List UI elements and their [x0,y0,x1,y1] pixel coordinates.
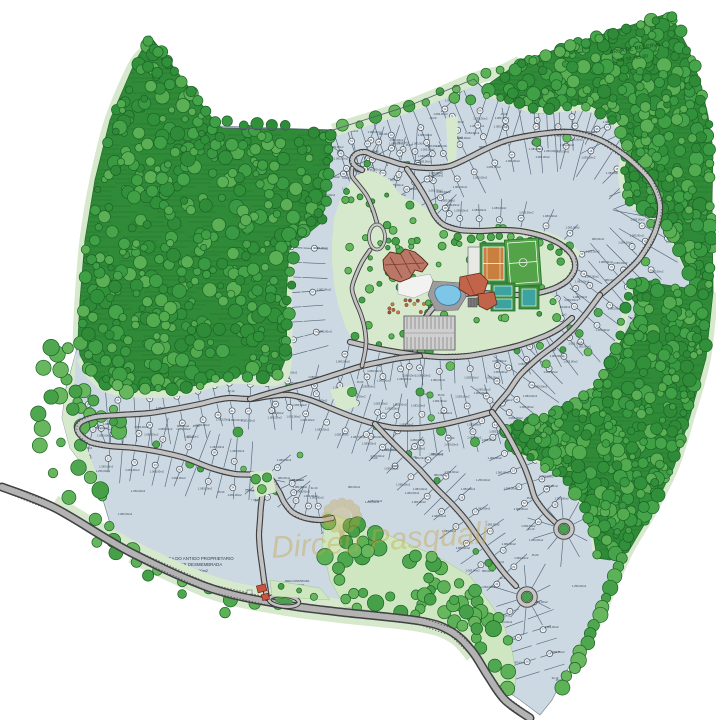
svg-text:1.083,00m2: 1.083,00m2 [293,485,308,489]
svg-text:1.083,00m2: 1.083,00m2 [300,418,315,422]
svg-text:1.083,00m2: 1.083,00m2 [568,342,583,346]
svg-text:1.083,00m2: 1.083,00m2 [563,360,578,364]
svg-text:1.083,00m2: 1.083,00m2 [519,405,534,409]
svg-text:1.083,00m2: 1.083,00m2 [441,199,456,203]
svg-text:1.083,00m2: 1.083,00m2 [99,465,114,469]
svg-text:1.083,00m2: 1.083,00m2 [230,449,245,453]
svg-text:1.083,00m2: 1.083,00m2 [438,411,453,415]
svg-text:1.083,00m2: 1.083,00m2 [550,354,565,358]
svg-text:1.083,00m2: 1.083,00m2 [198,486,213,490]
svg-text:1.083,00m2: 1.083,00m2 [472,208,487,212]
svg-text:1.083,00m2: 1.083,00m2 [310,496,325,500]
svg-text:45,00: 45,00 [357,380,364,384]
svg-text:1.083,00m2: 1.083,00m2 [315,427,330,431]
svg-text:980,00m2: 980,00m2 [415,456,427,460]
svg-text:1.083,00m2: 1.083,00m2 [599,260,614,264]
svg-text:32,10: 32,10 [311,486,318,490]
svg-text:1.083,00m2: 1.083,00m2 [367,369,382,373]
svg-text:1.083,00m2: 1.083,00m2 [144,433,159,437]
svg-text:1.083,00m2: 1.083,00m2 [402,374,417,378]
svg-text:1.250,00m2: 1.250,00m2 [96,469,111,473]
svg-text:1.083,00m2: 1.083,00m2 [269,411,284,415]
svg-text:1.083,00m2: 1.083,00m2 [539,475,554,479]
svg-text:1.083,00m2: 1.083,00m2 [277,458,292,462]
svg-text:1.083,00m2: 1.083,00m2 [473,116,488,120]
svg-text:1.083,00m2: 1.083,00m2 [334,157,349,161]
svg-text:1.083,00m2: 1.083,00m2 [560,143,575,147]
svg-text:1.083,00m2: 1.083,00m2 [416,374,431,378]
svg-text:45,00: 45,00 [371,456,378,460]
svg-text:1.083,00m2: 1.083,00m2 [585,250,600,254]
svg-text:1.083,00m2: 1.083,00m2 [229,418,244,422]
svg-text:1.083,00m2: 1.083,00m2 [455,395,470,399]
svg-text:1.083,00m2: 1.083,00m2 [544,625,559,629]
svg-text:1.083,00m2: 1.083,00m2 [493,370,508,374]
svg-text:1.083,00m2: 1.083,00m2 [514,556,529,560]
svg-text:1.083,00m2: 1.083,00m2 [564,298,579,302]
svg-text:980,00m2: 980,00m2 [592,237,604,241]
svg-text:1.083,00m2: 1.083,00m2 [555,497,570,501]
svg-text:1.083,00m2: 1.083,00m2 [544,484,559,488]
svg-text:1.083,00m2: 1.083,00m2 [465,131,480,135]
svg-text:1.083,00m2: 1.083,00m2 [618,240,633,244]
svg-text:1.083,00m2: 1.083,00m2 [97,434,112,438]
svg-text:45,00: 45,00 [430,116,437,120]
svg-text:1.083,00m2: 1.083,00m2 [368,499,383,503]
svg-text:45,00: 45,00 [501,112,508,116]
svg-text:1.083,00m2: 1.083,00m2 [519,210,534,214]
svg-text:1.083,00m2: 1.083,00m2 [389,142,404,146]
svg-text:1.083,00m2: 1.083,00m2 [396,483,411,487]
svg-text:1.083,00m2: 1.083,00m2 [630,218,645,222]
svg-text:1.083,00m2: 1.083,00m2 [506,159,521,163]
svg-text:1.083,00m2: 1.083,00m2 [465,569,480,573]
svg-text:1.083,00m2: 1.083,00m2 [431,378,446,382]
svg-text:1.083,00m2: 1.083,00m2 [313,246,328,250]
svg-text:1.083,00m2: 1.083,00m2 [413,487,428,491]
svg-text:1.083,00m2: 1.083,00m2 [318,329,333,333]
svg-text:1.083,00m2: 1.083,00m2 [613,261,628,265]
svg-text:1.083,00m2: 1.083,00m2 [461,487,476,491]
svg-text:32,10: 32,10 [228,389,235,393]
svg-text:980,00m2: 980,00m2 [431,452,443,456]
svg-text:1.083,00m2: 1.083,00m2 [453,185,468,189]
svg-text:980,00m2: 980,00m2 [434,473,446,477]
svg-text:1.083,00m2: 1.083,00m2 [543,370,558,374]
svg-text:1.083,00m2: 1.083,00m2 [334,433,349,437]
svg-text:1.083,00m2: 1.083,00m2 [529,147,544,151]
svg-text:1.083,00m2: 1.083,00m2 [649,270,664,274]
svg-text:1.083,00m2: 1.083,00m2 [488,456,503,460]
svg-text:1.083,00m2: 1.083,00m2 [361,384,376,388]
svg-text:1.083,00m2: 1.083,00m2 [227,493,242,497]
svg-text:1.083,00m2: 1.083,00m2 [485,376,500,380]
svg-text:1.083,00m2: 1.083,00m2 [412,500,427,504]
svg-text:1.083,00m2: 1.083,00m2 [473,176,488,180]
svg-text:1.083,00m2: 1.083,00m2 [514,507,529,511]
svg-text:1.083,00m2: 1.083,00m2 [550,650,565,654]
svg-text:1.083,00m2: 1.083,00m2 [362,441,377,445]
svg-text:980,00m2: 980,00m2 [177,424,189,428]
svg-text:1.083,00m2: 1.083,00m2 [535,155,550,159]
svg-text:1.083,00m2: 1.083,00m2 [585,274,600,278]
svg-text:1.083,00m2: 1.083,00m2 [296,490,311,494]
svg-text:1.083,00m2: 1.083,00m2 [429,174,444,178]
svg-text:1.083,00m2: 1.083,00m2 [485,522,500,526]
svg-text:1.083,00m2: 1.083,00m2 [502,542,517,546]
svg-text:1.083,00m2: 1.083,00m2 [543,214,558,218]
svg-text:1.250,00m2: 1.250,00m2 [476,478,491,482]
svg-text:980,00m2: 980,00m2 [348,485,360,489]
svg-text:1.083,00m2: 1.083,00m2 [565,225,580,229]
svg-text:1.083,00m2: 1.083,00m2 [481,438,496,442]
svg-text:1.250,00m2: 1.250,00m2 [572,584,587,588]
svg-text:1.083,00m2: 1.083,00m2 [529,538,544,542]
svg-text:1.083,00m2: 1.083,00m2 [494,124,509,128]
svg-text:1.083,00m2: 1.083,00m2 [476,506,491,510]
svg-text:32,10: 32,10 [187,435,194,439]
svg-text:1.083,00m2: 1.083,00m2 [150,470,165,474]
svg-text:1.083,00m2: 1.083,00m2 [503,486,518,490]
svg-text:1.083,00m2: 1.083,00m2 [377,379,392,383]
svg-text:1.083,00m2: 1.083,00m2 [595,328,610,332]
svg-text:45,00: 45,00 [406,143,413,147]
svg-text:1.083,00m2: 1.083,00m2 [445,203,460,207]
svg-text:1.083,00m2: 1.083,00m2 [454,208,469,212]
svg-text:1.083,00m2: 1.083,00m2 [432,399,447,403]
svg-text:1.083,00m2: 1.083,00m2 [523,394,538,398]
svg-text:1.083,00m2: 1.083,00m2 [420,147,435,151]
svg-text:1.083,00m2: 1.083,00m2 [351,435,366,439]
svg-text:1.083,00m2: 1.083,00m2 [118,512,133,516]
svg-text:1.083,00m2: 1.083,00m2 [373,401,388,405]
svg-text:1.083,00m2: 1.083,00m2 [630,234,645,238]
svg-text:1.083,00m2: 1.083,00m2 [481,585,496,589]
svg-text:45,00: 45,00 [218,490,225,494]
svg-text:32,10: 32,10 [528,527,535,531]
svg-text:1.083,00m2: 1.083,00m2 [508,416,523,420]
svg-text:1.083,00m2: 1.083,00m2 [292,403,307,407]
svg-text:1.083,00m2: 1.083,00m2 [158,427,173,431]
svg-text:1.083,00m2: 1.083,00m2 [125,468,140,472]
svg-text:1.083,00m2: 1.083,00m2 [433,112,448,116]
svg-text:1.083,00m2: 1.083,00m2 [456,136,471,140]
svg-text:1.083,00m2: 1.083,00m2 [134,425,149,429]
svg-text:1.083,00m2: 1.083,00m2 [411,403,426,407]
svg-text:1.083,00m2: 1.083,00m2 [216,417,231,421]
svg-text:32,10: 32,10 [448,436,455,440]
svg-text:1.083,00m2: 1.083,00m2 [317,287,332,291]
svg-text:1.083,00m2: 1.083,00m2 [581,156,596,160]
svg-text:1.250,00m2: 1.250,00m2 [131,489,146,493]
svg-text:1.083,00m2: 1.083,00m2 [210,445,225,449]
svg-text:1.083,00m2: 1.083,00m2 [467,422,482,426]
svg-text:1.083,00m2: 1.083,00m2 [436,190,451,194]
svg-text:1.083,00m2: 1.083,00m2 [417,159,432,163]
svg-text:1.083,00m2: 1.083,00m2 [410,438,425,442]
svg-text:AREA CONSTRUIDA: AREA CONSTRUIDA [285,579,310,583]
svg-text:1.250,00m2: 1.250,00m2 [544,149,559,153]
svg-text:1.083,00m2: 1.083,00m2 [533,385,548,389]
svg-text:980,00m2: 980,00m2 [278,476,290,480]
svg-text:1.083,00m2: 1.083,00m2 [444,470,459,474]
svg-text:1.083,00m2: 1.083,00m2 [385,407,400,411]
svg-text:1.083,00m2: 1.083,00m2 [486,165,501,169]
svg-text:45,00: 45,00 [392,464,399,468]
svg-text:1.083,00m2: 1.083,00m2 [496,471,511,475]
svg-text:45,00: 45,00 [532,553,539,557]
svg-text:1.083,00m2: 1.083,00m2 [336,360,351,364]
svg-text:1.083,00m2: 1.083,00m2 [492,359,507,363]
svg-text:1.083,00m2: 1.083,00m2 [268,415,283,419]
svg-text:1.083,00m2: 1.083,00m2 [474,391,489,395]
svg-text:1.083,00m2: 1.083,00m2 [290,478,305,482]
svg-text:1.083,00m2: 1.083,00m2 [418,133,433,137]
svg-text:45,00: 45,00 [193,424,200,428]
svg-text:1.083,00m2: 1.083,00m2 [393,403,408,407]
svg-text:1.083,00m2: 1.083,00m2 [575,279,590,283]
svg-text:1.083,00m2: 1.083,00m2 [286,414,301,418]
svg-text:1.083,00m2: 1.083,00m2 [171,476,186,480]
svg-text:1.083,00m2: 1.083,00m2 [397,377,412,381]
svg-text:1.083,00m2: 1.083,00m2 [418,154,433,158]
svg-text:1.083,00m2: 1.083,00m2 [492,206,507,210]
svg-text:45,00: 45,00 [438,393,445,397]
svg-text:1.083,00m2: 1.083,00m2 [444,443,459,447]
svg-text:1.083,00m2: 1.083,00m2 [405,491,420,495]
svg-text:1.083,00m2: 1.083,00m2 [464,375,479,379]
